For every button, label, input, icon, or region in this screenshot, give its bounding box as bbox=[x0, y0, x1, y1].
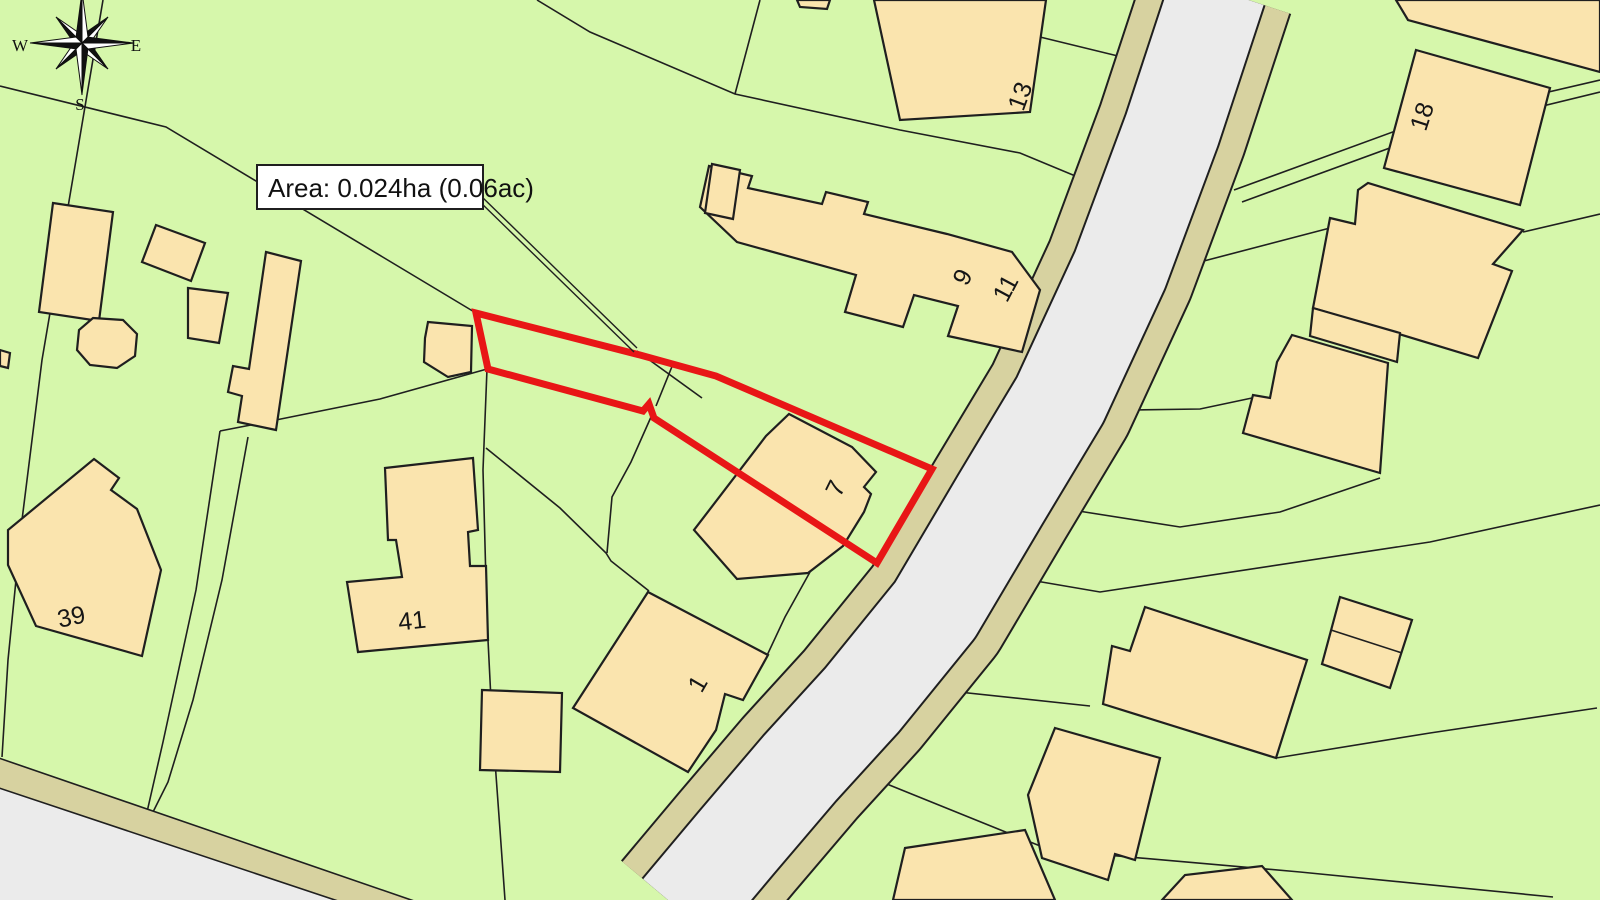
compass-label-east: E bbox=[131, 36, 141, 55]
compass-label-west: W bbox=[12, 36, 29, 55]
building bbox=[480, 690, 562, 772]
building bbox=[77, 318, 137, 368]
site-plan-page: Area: 0.024ha (0.06ac) W E S 39 41 1 7 9… bbox=[0, 0, 1600, 900]
compass-label-south: S bbox=[75, 95, 84, 114]
house-number-label-39: 39 bbox=[55, 601, 88, 634]
house-number-label-41: 41 bbox=[397, 606, 428, 637]
building bbox=[39, 203, 113, 321]
building bbox=[705, 164, 740, 219]
building bbox=[0, 350, 10, 368]
building bbox=[797, 0, 830, 9]
area-label-text: Area: 0.024ha (0.06ac) bbox=[268, 173, 534, 203]
map-canvas: Area: 0.024ha (0.06ac) W E S 39 41 1 7 9… bbox=[0, 0, 1600, 900]
